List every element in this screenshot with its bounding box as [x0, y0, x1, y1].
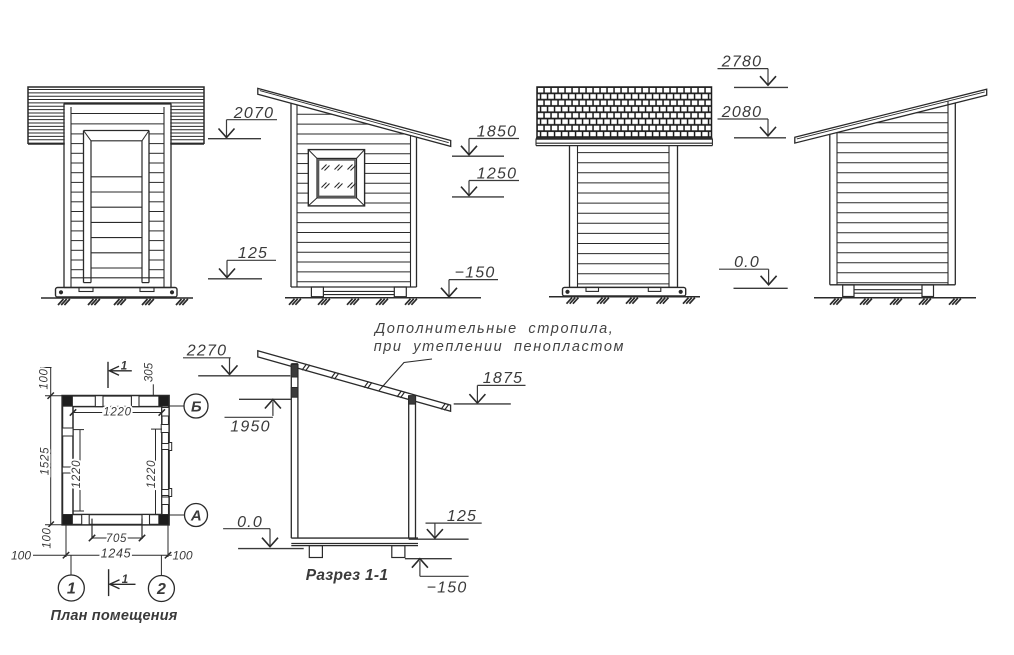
- svg-text:Б: Б: [191, 399, 202, 416]
- svg-text:125: 125: [447, 508, 477, 525]
- svg-text:1245: 1245: [101, 547, 132, 561]
- svg-text:при утеплении пенопластом: при утеплении пенопластом: [374, 339, 625, 355]
- svg-text:1950: 1950: [230, 419, 270, 436]
- svg-text:А: А: [190, 508, 202, 525]
- svg-text:1220: 1220: [103, 407, 131, 419]
- svg-text:2270: 2270: [186, 343, 227, 360]
- svg-text:−150: −150: [455, 265, 496, 282]
- svg-text:125: 125: [238, 245, 268, 262]
- svg-text:705: 705: [106, 533, 127, 545]
- svg-text:2780: 2780: [721, 54, 762, 71]
- svg-text:1220: 1220: [146, 460, 158, 488]
- svg-text:План помещения: План помещения: [50, 608, 177, 624]
- svg-text:1875: 1875: [483, 370, 523, 387]
- svg-text:1: 1: [67, 581, 76, 598]
- svg-text:100: 100: [39, 369, 51, 390]
- svg-text:−150: −150: [427, 580, 468, 597]
- svg-text:1: 1: [121, 361, 127, 373]
- svg-text:1525: 1525: [40, 447, 52, 475]
- svg-text:2: 2: [156, 581, 166, 598]
- svg-text:100: 100: [11, 549, 31, 563]
- svg-text:100: 100: [172, 549, 192, 563]
- svg-text:Разрез 1-1: Разрез 1-1: [306, 567, 389, 584]
- svg-text:0.0: 0.0: [734, 254, 760, 271]
- svg-text:100: 100: [42, 528, 54, 549]
- svg-text:1220: 1220: [71, 460, 83, 488]
- svg-text:305: 305: [144, 362, 156, 382]
- svg-text:Дополнительные стропила,: Дополнительные стропила,: [373, 321, 614, 337]
- svg-text:1: 1: [122, 574, 128, 586]
